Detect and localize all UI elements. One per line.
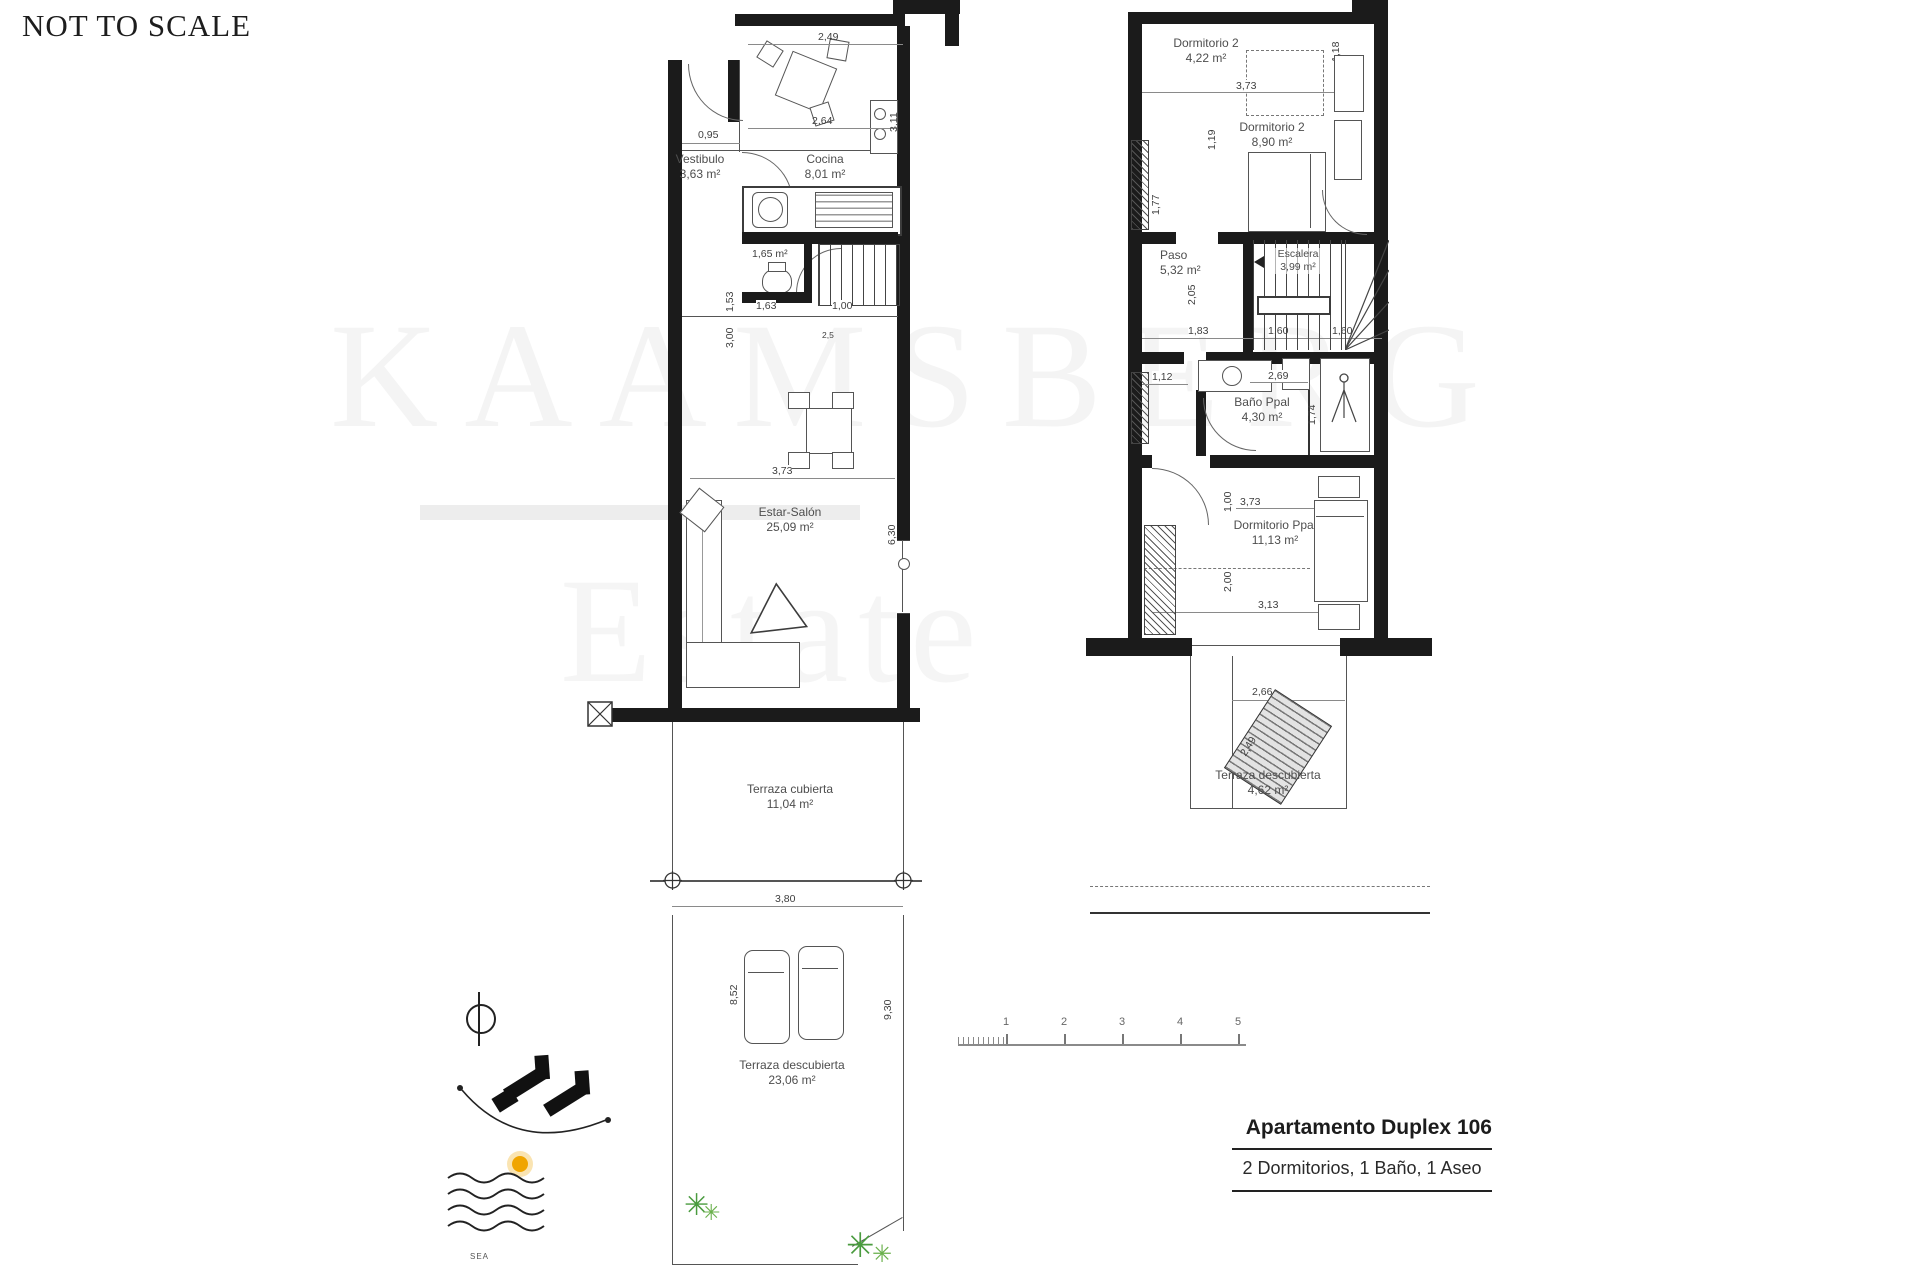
room-label-terraza-upper: Terraza descubierta 4,62 m² (1198, 768, 1338, 798)
room-name: Dormitorio 2 (1173, 36, 1238, 50)
kitchen-appliance (874, 108, 886, 120)
dimension-label: 8,52 (728, 985, 740, 1005)
toilet-tank (768, 262, 786, 272)
terrace-line (672, 722, 673, 882)
dimension-label: 1,53 (724, 292, 736, 312)
nightstand (1318, 476, 1360, 498)
window-line (902, 540, 903, 612)
bed-pillow-line (1310, 154, 1311, 228)
wardrobe (1334, 120, 1362, 180)
scale-number: 2 (1061, 1016, 1067, 1028)
room-label-paso: Paso 5,32 m² (1160, 248, 1230, 278)
dimension-label: 3,73 (772, 465, 792, 477)
scale-bar: 1 2 3 4 5 (950, 1010, 1250, 1055)
wall-segment (742, 232, 898, 244)
room-area: 25,09 m² (766, 520, 813, 534)
dimension-line (1250, 382, 1308, 383)
scale-tick (1064, 1034, 1066, 1044)
dimension-line (1142, 384, 1188, 385)
dimension-line (1142, 92, 1340, 93)
dining-chair (832, 452, 854, 469)
dimension-label: 3,73 (1236, 80, 1256, 92)
north-indicator-icon (466, 1004, 496, 1034)
room-area: 23,06 m² (768, 1073, 815, 1087)
plant-icon: ✳ (872, 1240, 892, 1269)
wall-segment (945, 14, 959, 46)
sun-lounger (798, 946, 844, 1040)
sea-label: SEA (470, 1252, 489, 1261)
scale-number: 3 (1119, 1016, 1125, 1028)
wall-segment (1128, 12, 1388, 24)
terrace-boundary (650, 880, 922, 882)
terrace-line (672, 1264, 858, 1265)
door-arc (688, 64, 743, 121)
dimension-label: 3,11 (888, 112, 900, 132)
room-area: 11,13 m² (1252, 533, 1298, 547)
dimension-label: 2,00 (1222, 572, 1234, 592)
dimension-line (748, 128, 897, 129)
dimension-label: 1,83 (1188, 325, 1208, 337)
room-label-cocina: Cocina 8,01 m² (790, 152, 860, 182)
wall-segment (735, 14, 905, 26)
dimension-label: 3,80 (775, 893, 795, 905)
sea-waves-icon (446, 1168, 556, 1246)
wall-segment (897, 612, 910, 720)
wall-segment (893, 0, 960, 14)
scale-bar-line (958, 1044, 1246, 1046)
stair-handrail (1257, 296, 1331, 315)
title-divider (1232, 1148, 1492, 1150)
dimension-label: 3,00 (724, 328, 736, 348)
wardrobe (1334, 55, 1364, 112)
bed (1248, 152, 1326, 232)
dining-table (806, 408, 852, 454)
room-name: Terraza cubierta (747, 782, 833, 796)
floorplan-sheet: KAAMSBERG Estate NOT TO SCALE 1,65 m² 1,… (0, 0, 1920, 1280)
dimension-label: 1,00 (832, 300, 852, 312)
room-area: 11,04 m² (767, 797, 813, 811)
wall-segment (1340, 638, 1432, 656)
wall-line (682, 150, 897, 151)
shower-head-icon (1328, 370, 1360, 430)
not-to-scale-label: NOT TO SCALE (22, 8, 251, 44)
window-hatch (1131, 372, 1149, 444)
dimension-label: 2,05 (1186, 285, 1198, 305)
dimension-label: 3,13 (1258, 599, 1278, 611)
room-area: 3,99 m² (1280, 261, 1316, 273)
staircase-winders (1345, 240, 1389, 350)
wall-line (682, 316, 898, 317)
room-name: Dormitorio Ppal (1234, 518, 1317, 532)
scale-bar-hatch (958, 1037, 1006, 1044)
dimension-line (1152, 612, 1340, 613)
terrace-line (903, 915, 904, 1231)
dimension-label: 2,64 (812, 115, 832, 127)
survey-marker-icon (894, 871, 913, 890)
room-label-vestibulo: Vestibulo 3,63 m² (660, 152, 740, 182)
sun-loungers-icon (448, 1048, 628, 1148)
lounger-line (748, 972, 784, 973)
room-area: 8,90 m² (1252, 135, 1293, 149)
room-name: Terraza descubierta (739, 1058, 844, 1072)
dimension-label: 2,49 (818, 31, 838, 43)
window-hatch (1131, 140, 1149, 230)
room-area: 3,63 m² (680, 167, 721, 181)
wardrobe-hatch (1144, 525, 1176, 635)
dashed-line (1090, 886, 1430, 887)
bath-sink (1222, 366, 1242, 386)
window-cross-marker-icon (586, 700, 614, 728)
door-arc (1152, 468, 1209, 525)
scale-number: 4 (1177, 1016, 1183, 1028)
kitchen-appliance (874, 128, 886, 140)
room-name: Vestibulo (676, 152, 725, 166)
coffee-table (742, 575, 822, 655)
room-label-terraza-descubierta: Terraza descubierta 23,06 m² (722, 1058, 862, 1088)
scale-tick (1006, 1034, 1008, 1044)
window-marker (898, 558, 910, 570)
lounger-line (802, 968, 838, 969)
dimension-label: 1,77 (1150, 195, 1162, 215)
stair-direction-arrow-icon (1254, 256, 1264, 268)
room-name: Dormitorio 2 (1239, 120, 1304, 134)
dimension-label: 1,00 (1222, 492, 1234, 512)
dimension-label: 1,19 (1206, 130, 1218, 150)
wall-segment (1128, 352, 1184, 364)
kitchen-hob (815, 192, 893, 228)
scale-number: 1 (1003, 1016, 1009, 1028)
dimension-label: 9,30 (882, 1000, 894, 1020)
dimension-label: 1,65 m² (752, 248, 788, 260)
scale-tick (1122, 1034, 1124, 1044)
room-label-terraza-cubierta: Terraza cubierta 11,04 m² (730, 782, 850, 812)
plant-icon: ✳ (702, 1200, 720, 1226)
bed-pillow-line (1316, 516, 1364, 517)
solid-line (1090, 912, 1430, 914)
room-area: 4,62 m² (1248, 783, 1289, 797)
dimension-label: 1,12 (1152, 371, 1172, 383)
plan-title: Apartamento Duplex 106 (1232, 1116, 1492, 1140)
room-area: 5,32 m² (1160, 263, 1201, 277)
room-name: Escalera (1278, 248, 1319, 260)
staircase-ground (818, 244, 900, 306)
dimension-label: 2,5 (822, 330, 834, 340)
plan-subtitle: 2 Dormitorios, 1 Baño, 1 Aseo (1232, 1158, 1492, 1179)
room-name: Estar-Salón (759, 505, 822, 519)
wall-line (1192, 645, 1340, 646)
dimension-label: 1,63 (756, 300, 776, 312)
nightstand (1318, 604, 1360, 630)
wall-segment (1243, 240, 1253, 353)
scale-number: 5 (1235, 1016, 1241, 1028)
dining-chair (788, 392, 810, 409)
dimension-label: 0,95 (698, 129, 718, 141)
wall-segment (1128, 24, 1142, 648)
dimension-label: 1,74 (1306, 405, 1318, 425)
room-area: 8,01 m² (805, 167, 846, 181)
sun-lounger (744, 950, 790, 1044)
terrace-line (903, 722, 904, 882)
bed-dashed (1246, 50, 1324, 116)
wall-segment (804, 244, 812, 303)
room-area: 4,22 m² (1186, 51, 1227, 65)
plant-icon: ✳ (846, 1226, 875, 1266)
terrace-line (672, 915, 673, 1265)
dimension-label: 3,73 (1240, 496, 1260, 508)
survey-marker-icon (663, 871, 682, 890)
wall-segment (1128, 455, 1152, 468)
kitchen-sink-basin (758, 197, 783, 222)
north-indicator-line (478, 992, 480, 1046)
dining-chair (832, 392, 854, 409)
wall-segment (1210, 455, 1388, 468)
scale-tick (1238, 1034, 1240, 1044)
title-divider (1232, 1190, 1492, 1192)
dimension-line (690, 478, 895, 479)
dimension-line (672, 906, 903, 907)
wall-segment (1352, 0, 1388, 12)
room-name: Cocina (806, 152, 843, 166)
door-arc (1322, 190, 1367, 235)
wall-segment (1086, 638, 1192, 656)
window (897, 540, 910, 614)
dimension-line (748, 44, 903, 45)
scale-tick (1180, 1034, 1182, 1044)
room-label-dormitorio2b: Dormitorio 2 8,90 m² (1226, 120, 1318, 150)
room-label-escalera: Escalera 3,99 m² (1266, 248, 1330, 274)
dimension-line (682, 143, 740, 144)
room-label-salon: Estar-Salón 25,09 m² (735, 505, 845, 535)
dimension-label: 2,69 (1268, 370, 1288, 382)
room-label-dormitorio2a: Dormitorio 2 4,22 m² (1160, 36, 1252, 66)
room-name: Paso (1160, 248, 1187, 262)
wall-segment (1128, 232, 1176, 244)
wall-segment (598, 708, 920, 722)
room-name: Terraza descubierta (1215, 768, 1320, 782)
